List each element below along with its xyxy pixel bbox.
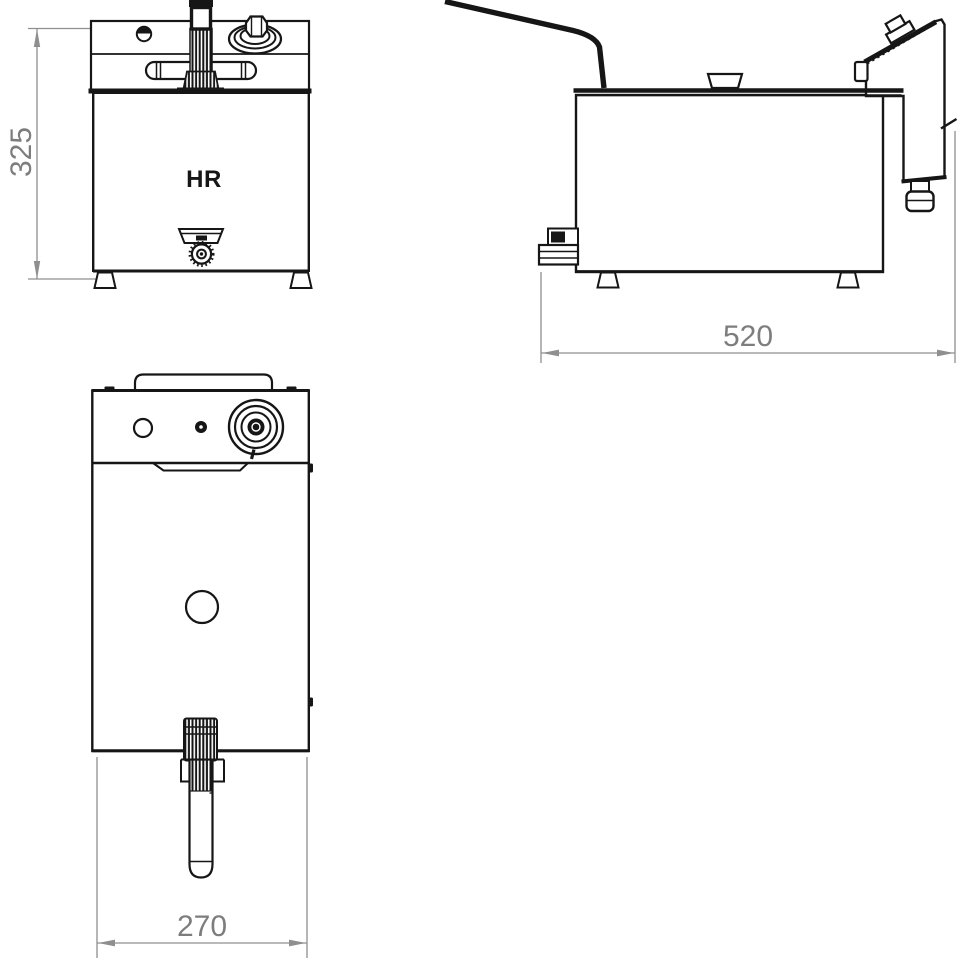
side-view: 520 (445, 2, 957, 364)
side-pin-upper (309, 464, 313, 473)
arrow-up-icon (34, 29, 40, 47)
drain-knob-dot (200, 252, 203, 255)
front-right-foot (291, 273, 312, 289)
height-dimension: 325 (5, 29, 97, 280)
basket-handle-plan (181, 719, 224, 878)
side-right-foot (838, 273, 859, 288)
depth-dimension-label: 520 (723, 320, 773, 353)
pilot-light (137, 27, 151, 41)
arrow-left-icon (98, 940, 115, 947)
height-dimension-label: 325 (5, 127, 38, 177)
pilot-light-plan (134, 419, 152, 437)
arrow-right-icon (937, 350, 954, 357)
arrow-left-icon (542, 350, 559, 357)
width-dimension-label: 270 (177, 910, 227, 943)
brand-logo: HR (186, 166, 222, 193)
arrow-down-icon (34, 261, 40, 279)
fryer-dimension-drawing: 325 (0, 0, 970, 971)
side-pin-lower (309, 698, 313, 707)
handle-rod-end (190, 864, 213, 878)
knob-grip (246, 17, 267, 37)
drain-hole (186, 591, 218, 623)
knob-center (248, 419, 265, 436)
rod-clamp (184, 72, 219, 90)
side-left-foot (598, 273, 619, 288)
technical-drawing-page: 325 (0, 0, 970, 971)
front-view: 325 (5, 0, 312, 288)
arrow-right-icon (289, 940, 306, 947)
rod-window (192, 8, 211, 30)
lid-knob (708, 74, 742, 88)
lid-handle (135, 375, 272, 392)
front-left-foot (95, 273, 116, 289)
drain-spout (539, 245, 578, 265)
handle-clamp-block (184, 719, 217, 761)
basket-handle (445, 2, 604, 89)
cabinet-body-side (576, 95, 883, 272)
mounting-tab (855, 62, 868, 81)
hinge-pin-right (287, 387, 297, 392)
drain-valve-side (539, 229, 578, 265)
top-view: 270 (92, 375, 313, 959)
handle-grip-hatch (190, 760, 213, 791)
rod-shaft (190, 29, 212, 74)
hinge-pin-left (105, 387, 115, 392)
drain-slot (196, 236, 207, 241)
gland-neck (911, 181, 929, 192)
cable-gland (907, 181, 934, 211)
drain-body-slot (551, 232, 565, 243)
indicator-light-center (199, 425, 203, 429)
